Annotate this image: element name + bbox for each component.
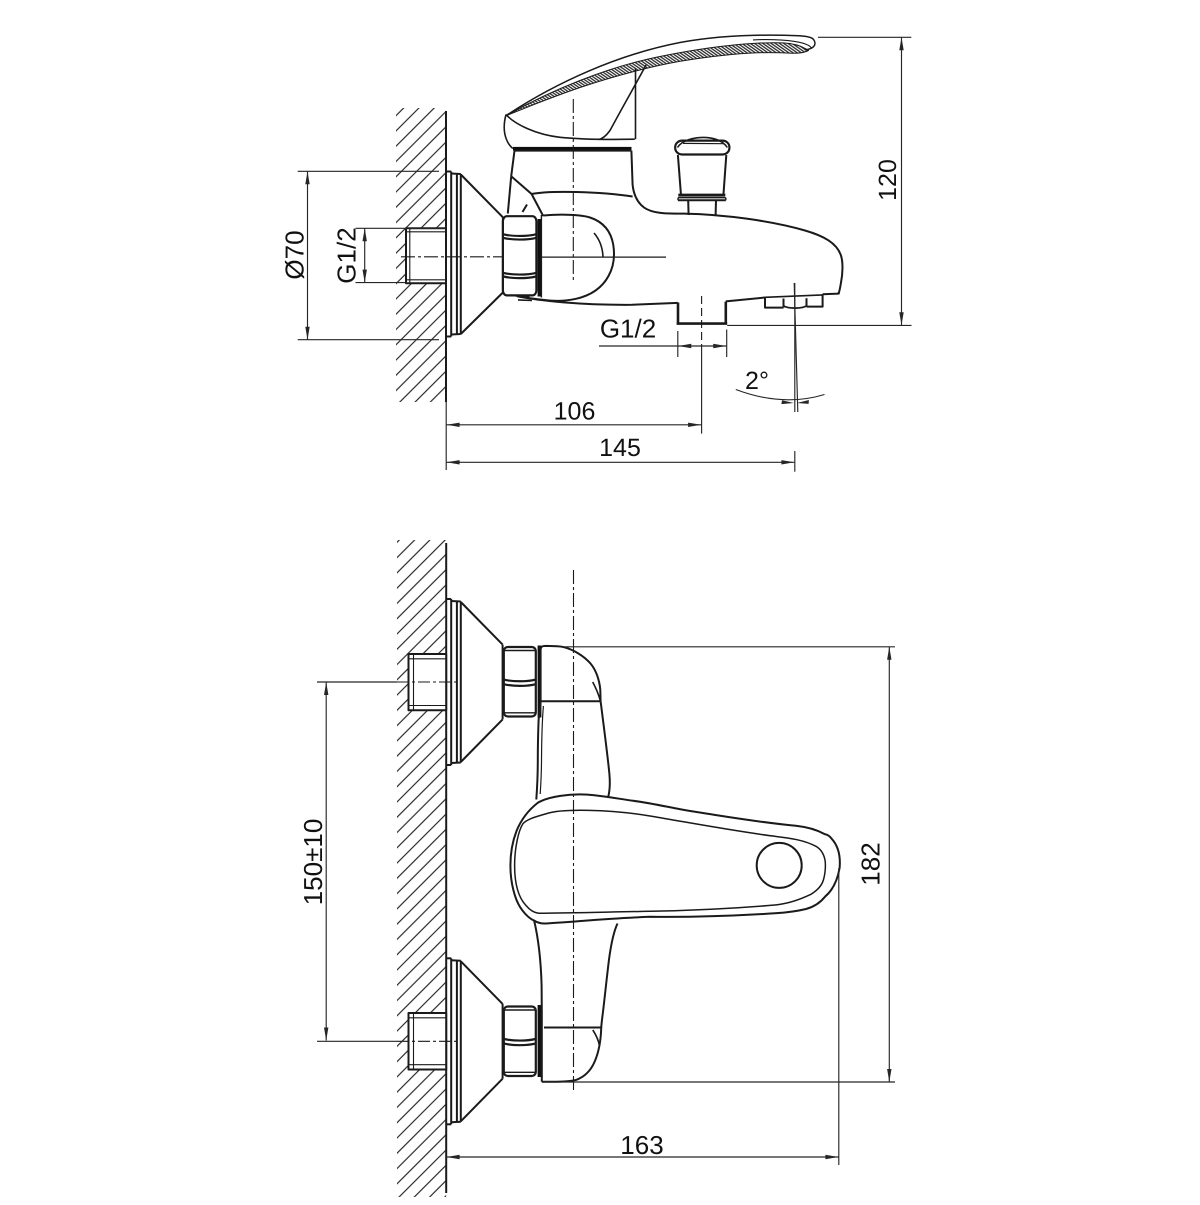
svg-text:106: 106 — [554, 397, 596, 425]
svg-text:G1/2: G1/2 — [600, 313, 656, 343]
svg-text:145: 145 — [599, 434, 641, 462]
svg-text:2°: 2° — [745, 367, 769, 395]
svg-text:150±10: 150±10 — [298, 819, 328, 906]
svg-text:163: 163 — [620, 1130, 663, 1160]
svg-text:182: 182 — [856, 842, 886, 885]
svg-text:120: 120 — [874, 159, 902, 201]
svg-text:G1/2: G1/2 — [332, 227, 362, 283]
svg-text:Ø70: Ø70 — [279, 230, 309, 279]
